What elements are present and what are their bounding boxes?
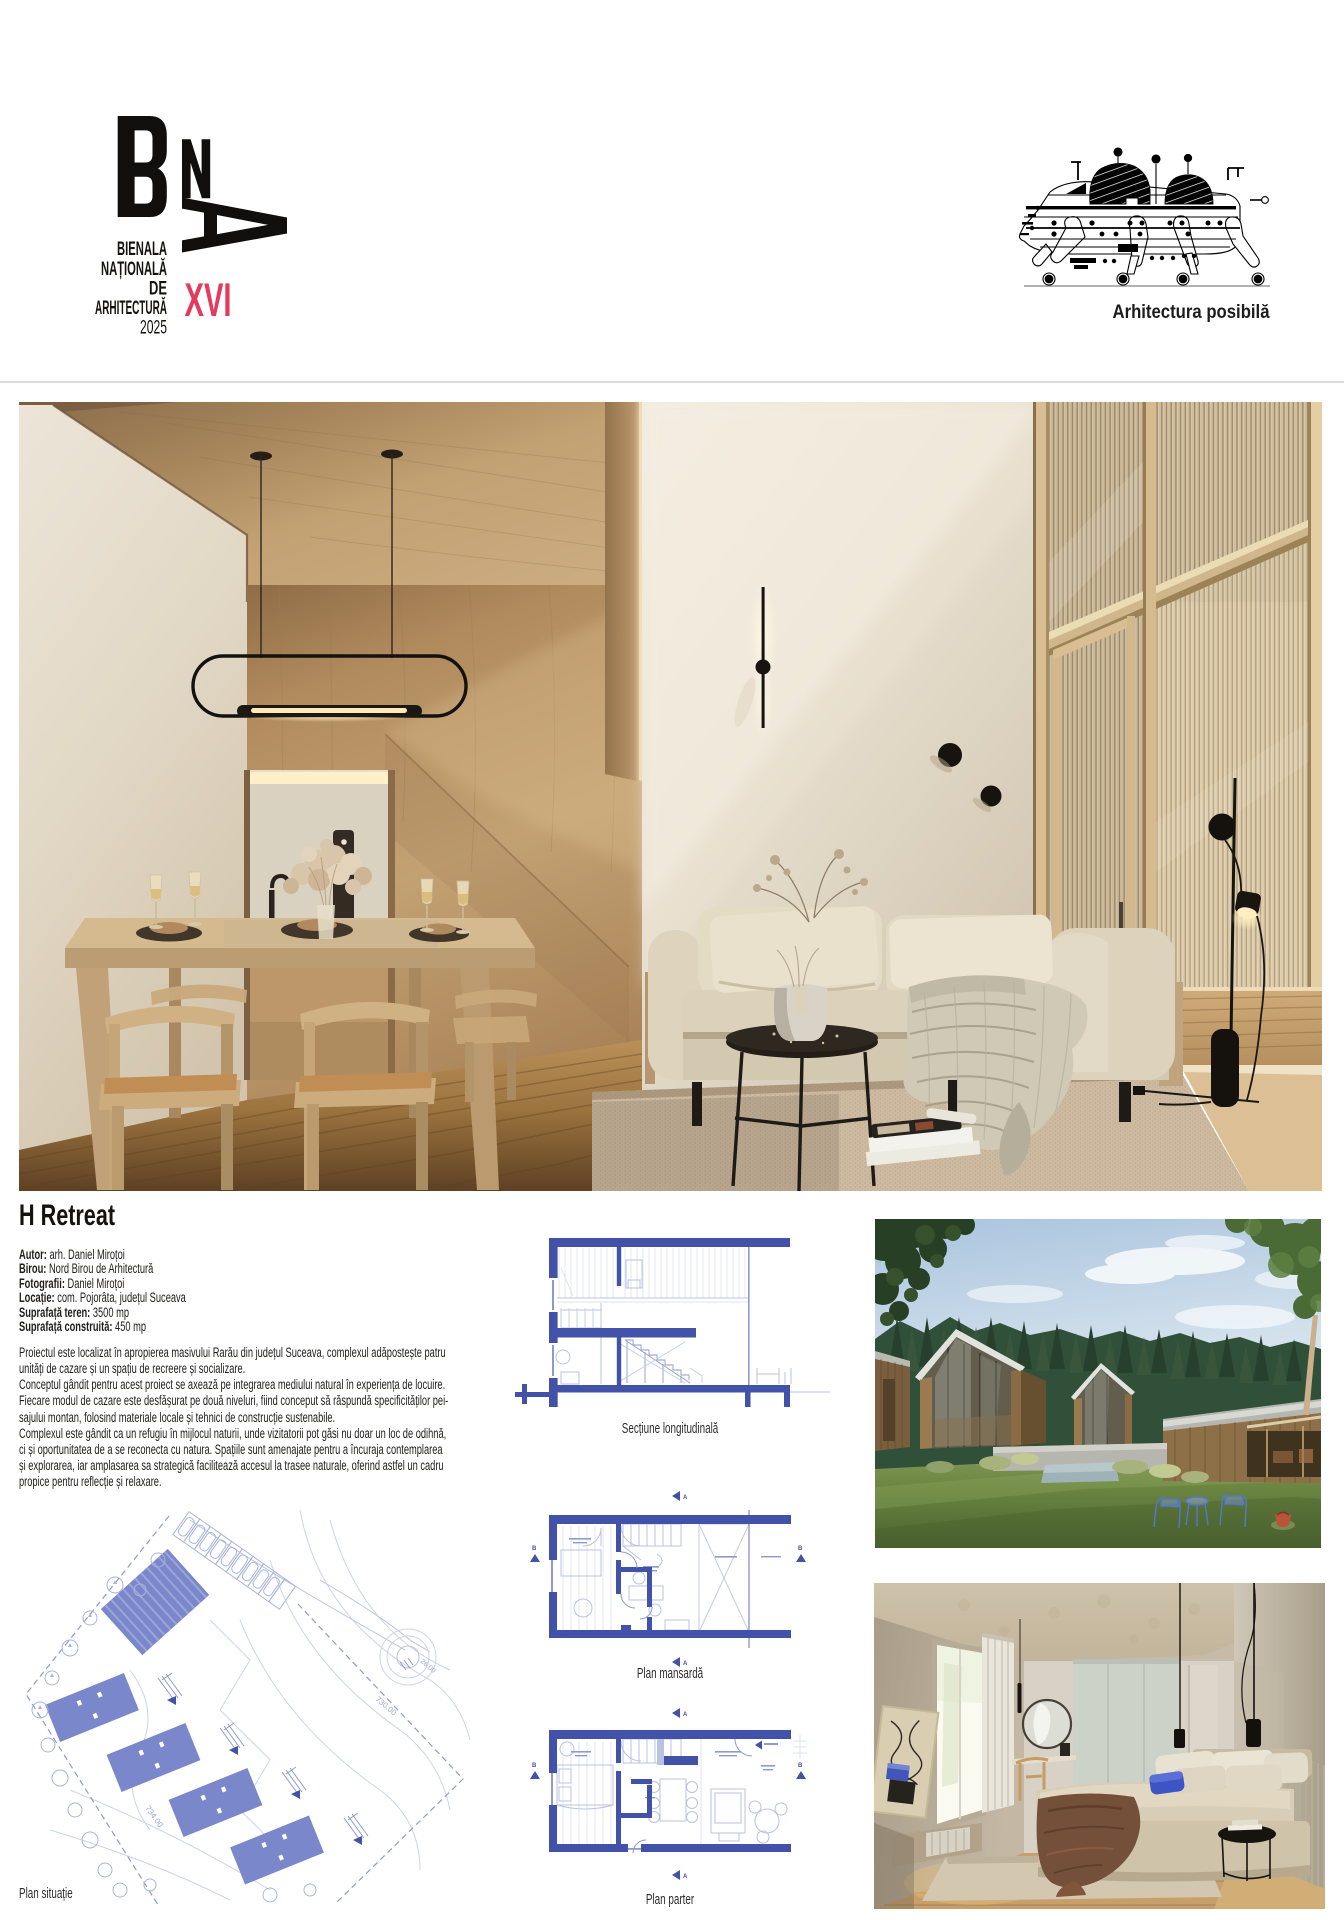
svg-text:B: B (532, 1546, 537, 1552)
svg-text:B: B (798, 1546, 803, 1552)
svg-text:NAȚIONALĂ: NAȚIONALĂ (101, 257, 167, 280)
svg-text:ARHITECTURĂ: ARHITECTURĂ (95, 296, 167, 319)
svg-text:A: A (683, 1712, 688, 1718)
svg-text:26.00: 26.00 (419, 1658, 437, 1675)
svg-text:2025: 2025 (140, 317, 167, 339)
svg-text:XVI: XVI (185, 273, 232, 326)
svg-text:A: A (683, 1495, 688, 1501)
svg-text:B: B (798, 1763, 803, 1769)
svg-text:B: B (532, 1763, 537, 1769)
svg-text:Arhitectura posibilă: Arhitectura posibilă (1113, 301, 1270, 323)
svg-text:A: A (683, 1874, 688, 1880)
